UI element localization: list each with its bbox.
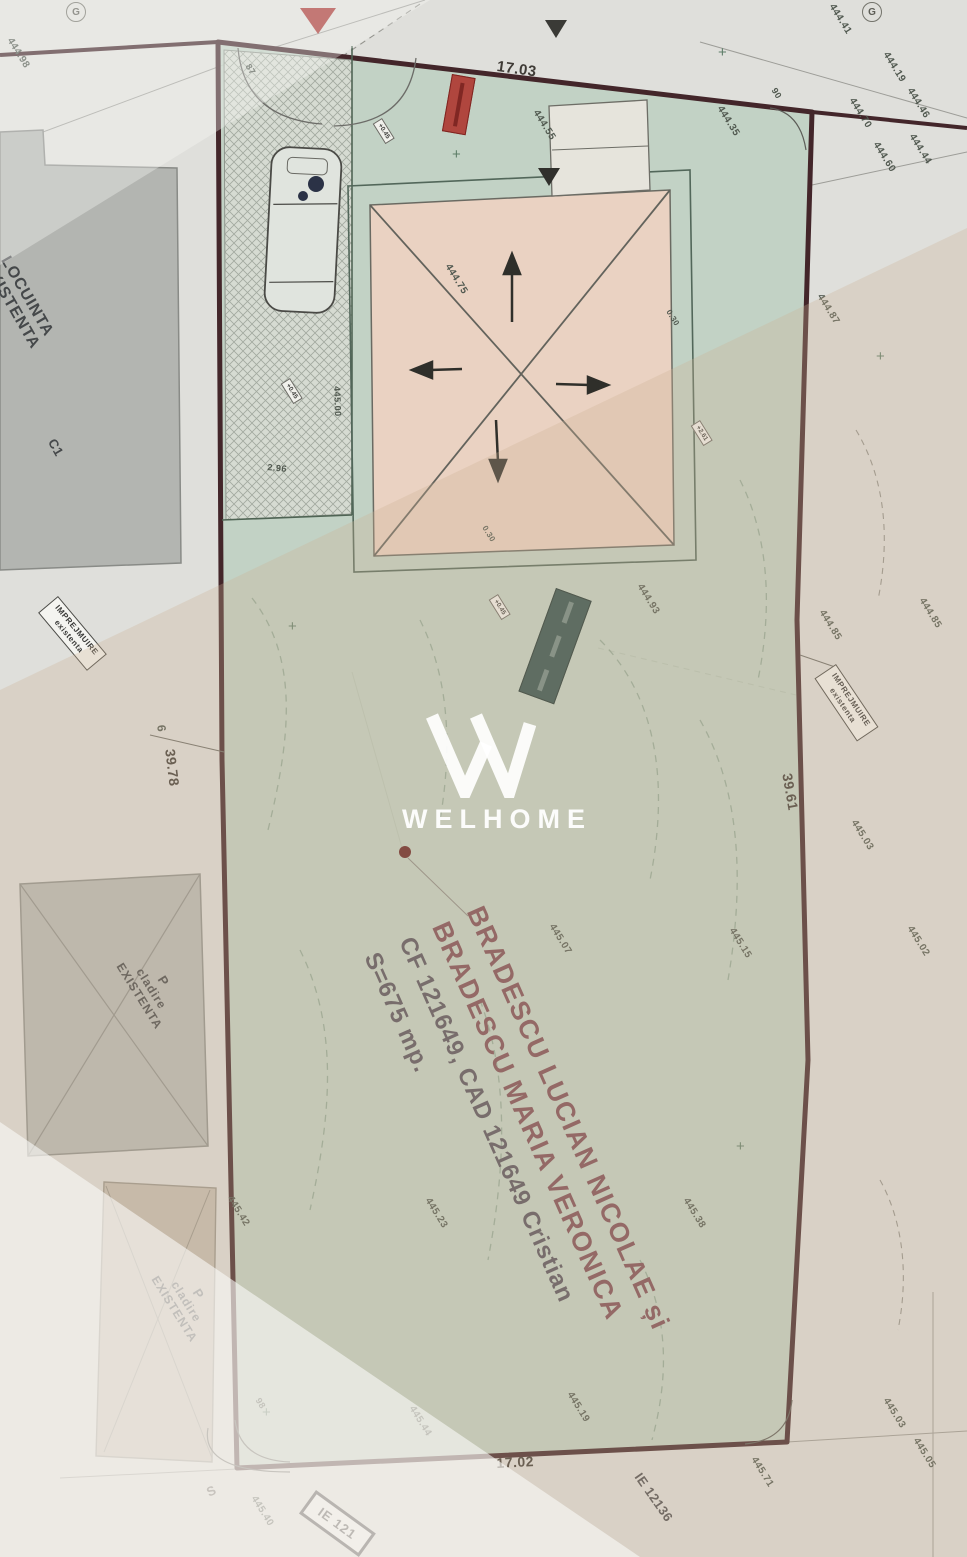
grid-cross-marker: + (876, 348, 885, 365)
compass-marker-left: G (66, 2, 86, 22)
street-line-right (812, 112, 967, 128)
car (264, 146, 342, 313)
grid-cross-marker: + (288, 618, 297, 635)
grid-cross-marker: + (736, 1138, 745, 1155)
grid-cross-marker: + (452, 146, 461, 163)
compass-marker-right: G (862, 2, 882, 22)
building-level-label: 445.00 (332, 386, 343, 417)
dim-small-c: 2.96 (267, 462, 287, 474)
survey-point-red (399, 846, 411, 858)
site-plan-scan: 17.03 17.02 39.78 39.61 LOCUINTA EXISTEN… (0, 0, 967, 1557)
street-line-left (0, 42, 218, 55)
proposed-house-roof (370, 190, 674, 556)
grid-cross-marker: + (718, 44, 727, 61)
survey-point-blue-small (298, 191, 308, 201)
grid-cross-marker: + (262, 1404, 271, 1421)
dim-bottom: 17.02 (496, 1453, 534, 1471)
survey-point-blue (308, 176, 324, 192)
site-plan-drawing (0, 0, 967, 1557)
porch (538, 100, 650, 196)
dark-triangle-marker (545, 20, 567, 38)
